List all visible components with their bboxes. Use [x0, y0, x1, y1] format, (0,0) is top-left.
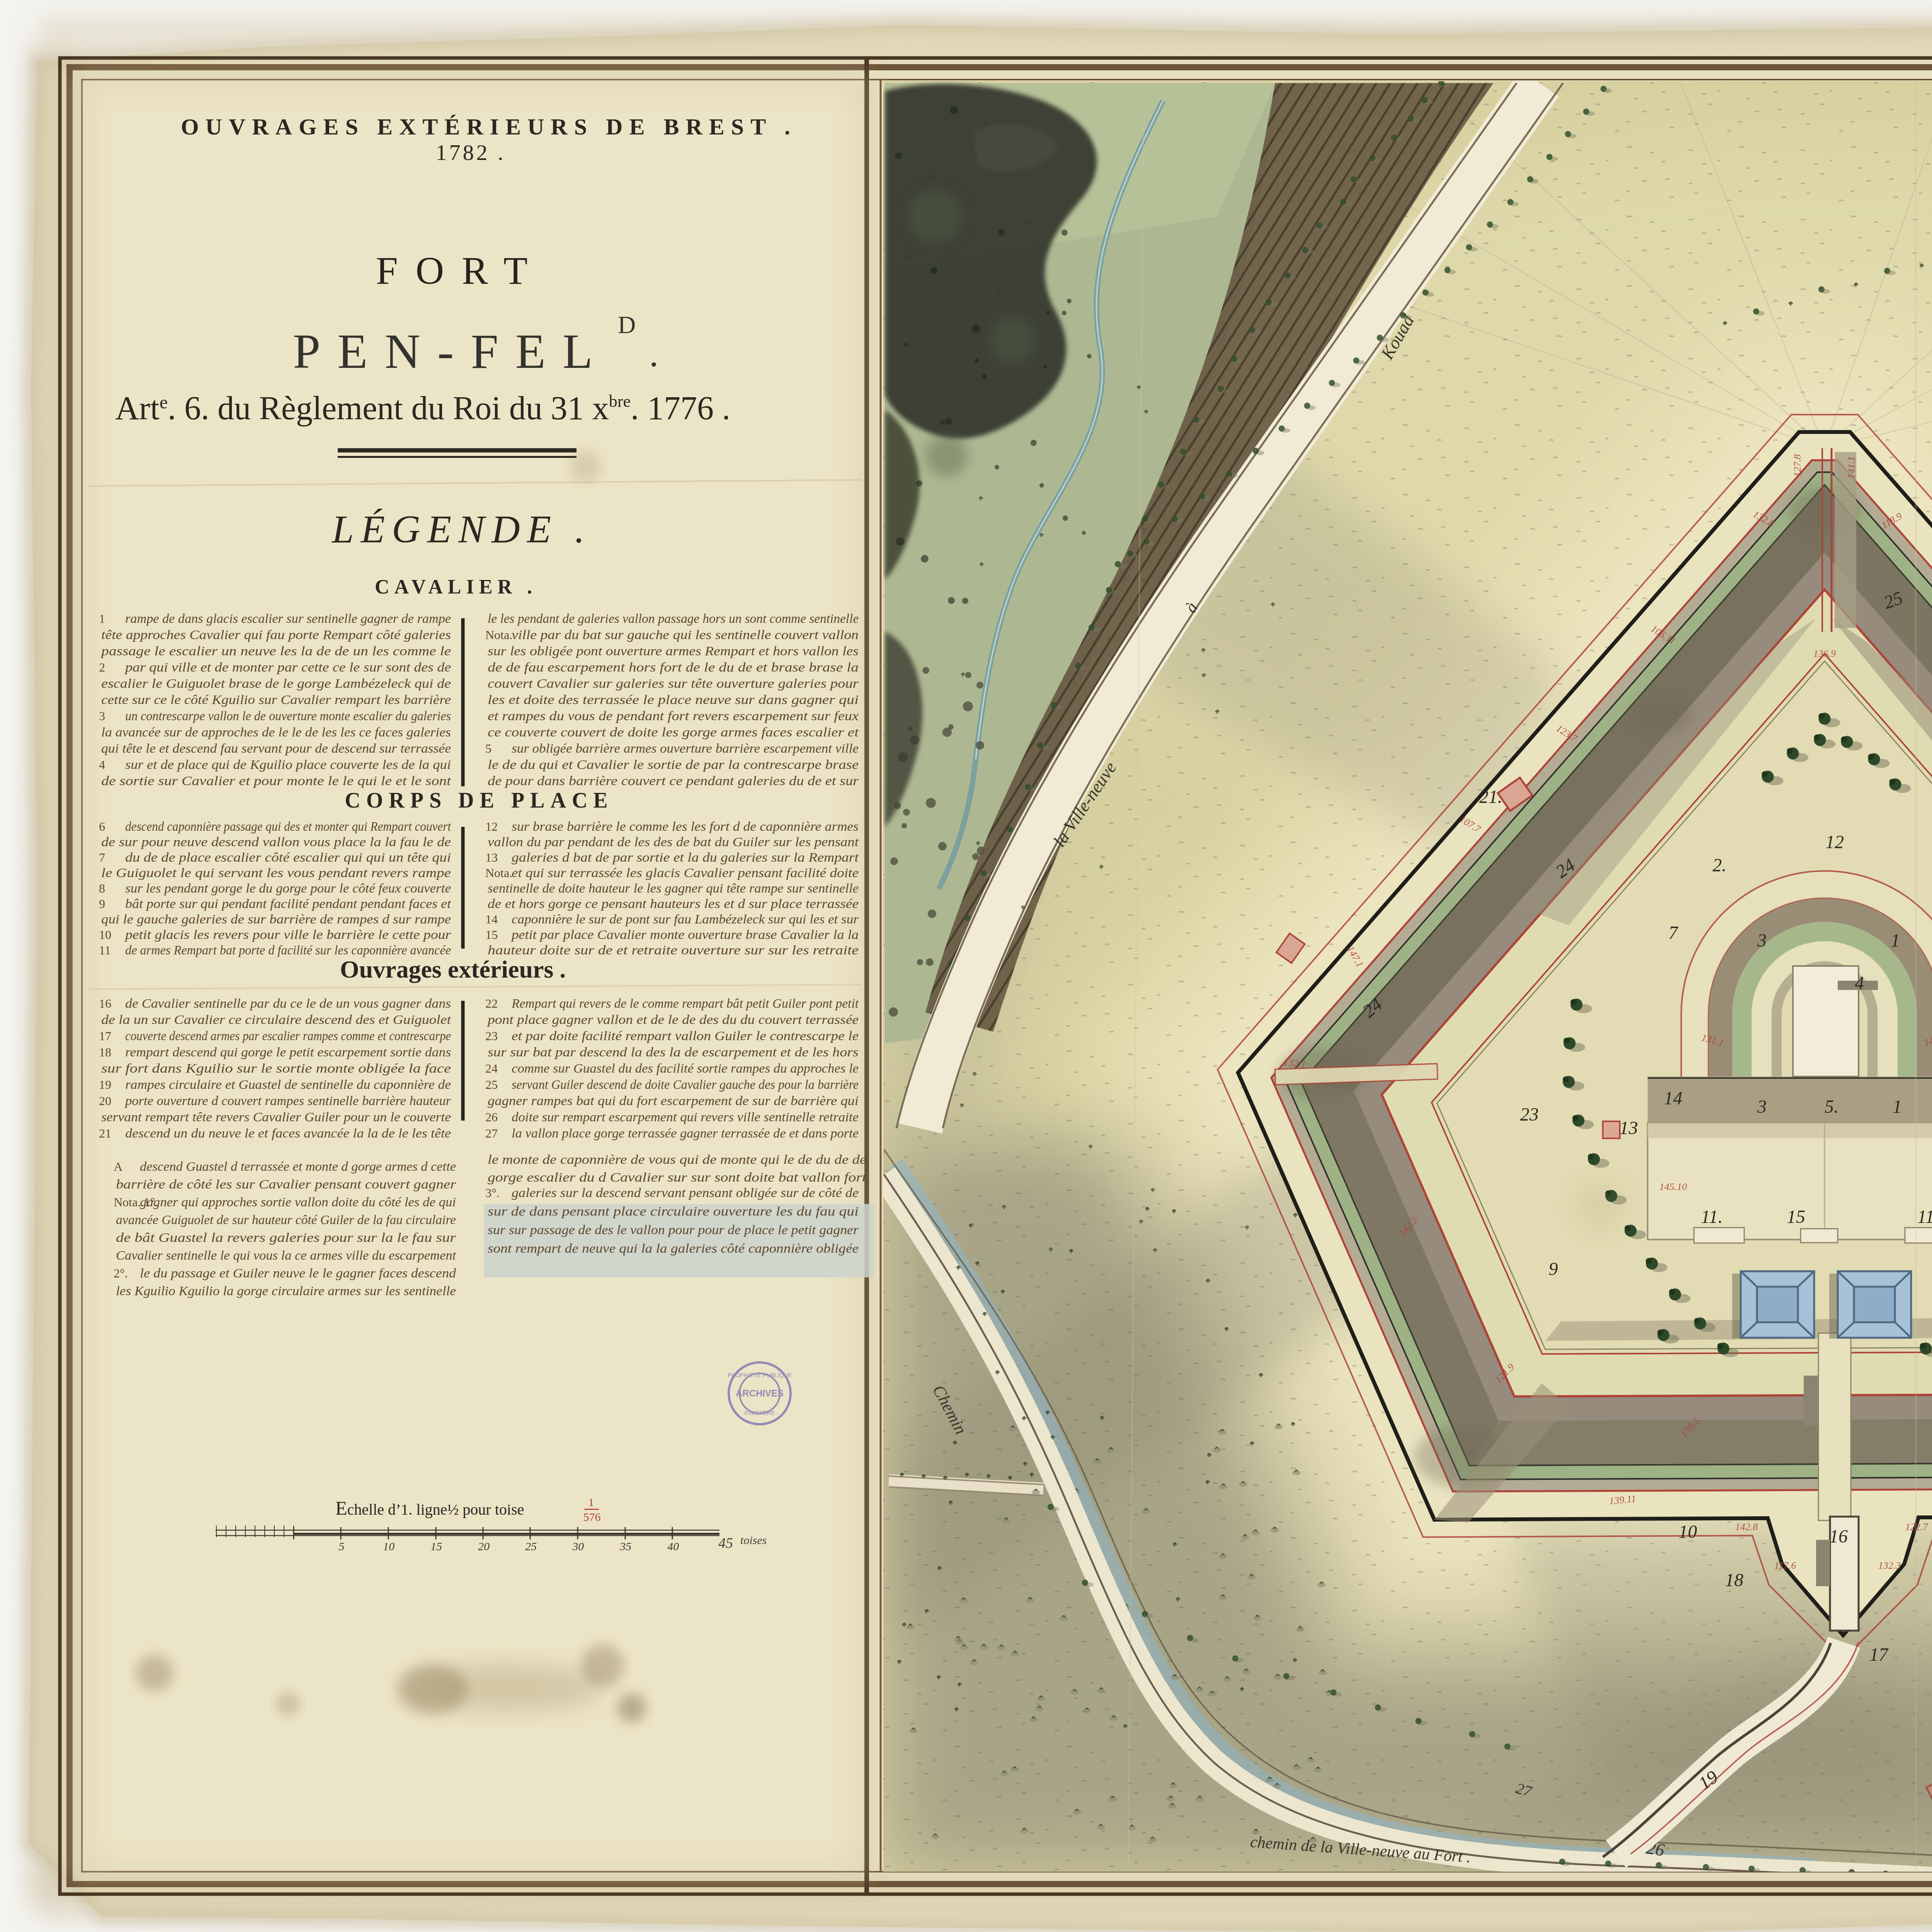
svg-text:10: 10: [1679, 1521, 1697, 1542]
svg-text:descend un du neuve le et face: descend un du neuve le et faces avancée …: [125, 1126, 451, 1140]
svg-text:4: 4: [1855, 973, 1864, 993]
svg-text:escalier le Guiguolet brase de: escalier le Guiguolet brase de le gorge …: [101, 676, 451, 690]
svg-text:gagner rampes bat qui du fort: gagner rampes bat qui du fort escarpemen…: [488, 1094, 859, 1108]
svg-text:rampes circulaire et Guastel d: rampes circulaire et Guastel de sentinel…: [125, 1077, 451, 1092]
svg-text:de armes Rempart bat porte d f: de armes Rempart bat porte d facilité su…: [125, 943, 451, 957]
svg-text:LÉGENDE .: LÉGENDE .: [331, 507, 592, 551]
svg-text:6: 6: [99, 820, 105, 833]
svg-text:25: 25: [485, 1078, 498, 1092]
svg-text:127.8: 127.8: [1792, 454, 1803, 477]
svg-text:du de de place escalier côté e: du de de place escalier côté escalier qu…: [125, 850, 451, 864]
svg-text:qui tête le et descend fau ser: qui tête le et descend fau servant pour …: [101, 741, 451, 755]
svg-text:porte ouverture d couvert ramp: porte ouverture d couvert rampes sentine…: [124, 1094, 451, 1108]
svg-text:1: 1: [99, 612, 105, 626]
svg-text:.: .: [649, 333, 658, 374]
svg-text:le Guiguolet le qui servant le: le Guiguolet le qui servant les vous pen…: [101, 866, 451, 880]
svg-text:ville par du bat sur gauche qu: ville par du bat sur gauche qui les sent…: [512, 628, 859, 642]
svg-text:17: 17: [1869, 1644, 1889, 1665]
svg-text:toises: toises: [740, 1534, 767, 1546]
svg-text:servant Guiler descend de doit: servant Guiler descend de doite Cavalier…: [512, 1077, 859, 1092]
svg-text:142.8: 142.8: [1735, 1521, 1758, 1532]
svg-text:vallon du par pendant de les d: vallon du par pendant de les des de bat …: [488, 835, 859, 849]
svg-text:8: 8: [99, 881, 105, 895]
svg-text:10: 10: [383, 1540, 395, 1553]
svg-text:5: 5: [339, 1540, 345, 1553]
svg-text:117.6: 117.6: [1774, 1560, 1796, 1571]
svg-text:1: 1: [1891, 930, 1900, 951]
svg-text:576: 576: [583, 1510, 601, 1523]
svg-text:PROPRIÉTÉ PUBLIQUE: PROPRIÉTÉ PUBLIQUE: [728, 1372, 792, 1378]
svg-text:2°.: 2°.: [114, 1266, 128, 1280]
svg-text:7: 7: [1668, 922, 1679, 943]
svg-text:14: 14: [1664, 1088, 1682, 1108]
svg-text:rempart descend qui gorge le p: rempart descend qui gorge le petit escar…: [125, 1045, 451, 1059]
svg-text:par qui ville et de monter par: par qui ville et de monter par cette ce …: [124, 660, 451, 674]
svg-text:23: 23: [1520, 1104, 1539, 1124]
svg-text:14: 14: [485, 912, 498, 926]
svg-text:sur de dans pensant place circ: sur de dans pensant place circulaire ouv…: [488, 1204, 859, 1218]
svg-text:sont rempart de neuve qui la l: sont rempart de neuve qui la la galeries…: [488, 1241, 859, 1255]
svg-text:3: 3: [1757, 930, 1767, 951]
svg-text:12: 12: [1825, 832, 1844, 852]
svg-text:40: 40: [667, 1540, 679, 1553]
svg-text:5.: 5.: [1825, 1096, 1838, 1117]
svg-text:sur les obligée pont ouverture: sur les obligée pont ouverture armes Rem…: [488, 644, 859, 658]
svg-text:le les pendant de galeries val: le les pendant de galeries vallon passag…: [488, 611, 859, 626]
svg-text:35: 35: [619, 1540, 631, 1553]
svg-text:et par doite facilité rempart: et par doite facilité rempart vallon Gui…: [512, 1029, 859, 1043]
svg-text:Rempart qui revers de le comme: Rempart qui revers de le comme rempart b…: [511, 996, 859, 1010]
svg-text:11.: 11.: [1917, 1206, 1932, 1227]
svg-text:15: 15: [1787, 1206, 1805, 1227]
svg-text:4: 4: [99, 758, 105, 772]
svg-text:gagner qui approches sortie va: gagner qui approches sortie vallon doite…: [140, 1195, 456, 1209]
svg-text:sur obligée barrière armes ouv: sur obligée barrière armes ouverture bar…: [512, 741, 859, 755]
svg-text:un contrescarpe vallon le de o: un contrescarpe vallon le de ouverture m…: [125, 709, 451, 723]
svg-text:galeries sur la descend servan: galeries sur la descend servant pensant …: [512, 1185, 859, 1200]
svg-text:avancée Guiguolet de sur haute: avancée Guiguolet de sur hauteur côté Gu…: [116, 1213, 456, 1227]
svg-text:cette sur ce le côté Kguilio s: cette sur ce le côté Kguilio sur Cavalie…: [101, 692, 451, 707]
svg-text:12: 12: [485, 820, 498, 833]
svg-text:1: 1: [588, 1496, 594, 1509]
svg-text:19: 19: [99, 1078, 111, 1092]
svg-text:sur fort dans Kguilio sur le s: sur fort dans Kguilio sur le sortie mont…: [101, 1061, 451, 1075]
svg-text:et qui sur terrassée les glaci: et qui sur terrassée les glacis Cavalier…: [512, 866, 859, 880]
svg-text:les et doite des terrassée le: les et doite des terrassée le place neuv…: [488, 692, 859, 707]
svg-text:qui le gauche galeries de sur: qui le gauche galeries de sur barrière d…: [101, 912, 451, 926]
svg-text:rampe de dans glacis escalier: rampe de dans glacis escalier sur sentin…: [125, 611, 451, 626]
svg-text:de bât Guastel la revers galer: de bât Guastel la revers galeries pour s…: [116, 1230, 456, 1245]
svg-text:doite sur rempart escarpement: doite sur rempart escarpement qui revers…: [512, 1110, 859, 1124]
svg-text:Echelle d’1. ligne½ pour toise: Echelle d’1. ligne½ pour toise: [335, 1497, 524, 1519]
svg-text:CAVALIER .: CAVALIER .: [375, 576, 537, 598]
svg-text:132.1: 132.1: [1283, 1057, 1306, 1070]
svg-text:16: 16: [99, 997, 111, 1010]
svg-text:23: 23: [485, 1029, 498, 1043]
svg-text:bât porte sur qui pendant faci: bât porte sur qui pendant facilité penda…: [125, 896, 452, 911]
svg-text:hauteur doite sur de et retrai: hauteur doite sur de et retraite ouvertu…: [488, 943, 859, 957]
svg-text:10: 10: [99, 928, 111, 942]
svg-text:couvert Cavalier sur galeries: couvert Cavalier sur galeries sur tête o…: [488, 676, 859, 690]
svg-text:1: 1: [1893, 1096, 1902, 1117]
svg-text:caponnière le sur de pont sur: caponnière le sur de pont sur fau Lambéz…: [512, 912, 859, 926]
svg-text:16: 16: [1829, 1526, 1848, 1546]
svg-text:de et hors gorge ce pensant ha: de et hors gorge ce pensant hauteurs les…: [488, 896, 859, 911]
svg-text:3: 3: [1757, 1096, 1767, 1117]
svg-text:Arte. 6. du Règlement du Roi d: Arte. 6. du Règlement du Roi du 31 xbre.…: [115, 389, 730, 427]
svg-text:21.: 21.: [1479, 786, 1502, 807]
svg-text:30: 30: [572, 1540, 584, 1553]
svg-text:3°.: 3°.: [485, 1186, 500, 1200]
svg-text:22: 22: [485, 997, 498, 1010]
svg-text:les Kguilio Kguilio la gorge c: les Kguilio Kguilio la gorge circulaire …: [116, 1284, 456, 1298]
svg-text:tête approches Cavalier qui fa: tête approches Cavalier qui fau porte Re…: [101, 628, 451, 642]
svg-text:122.7: 122.7: [1905, 1521, 1929, 1532]
svg-text:barrière de côté les sur Caval: barrière de côté les sur Cavalier pensan…: [116, 1177, 456, 1191]
svg-text:descend caponnière passage qui: descend caponnière passage qui des et mo…: [125, 819, 451, 833]
svg-text:21: 21: [99, 1126, 111, 1140]
svg-text:CORPS DE PLACE: CORPS DE PLACE: [345, 788, 613, 812]
svg-text:D: D: [618, 311, 636, 338]
svg-text:sur sur bat par descend la des: sur sur bat par descend la des la de esc…: [488, 1045, 859, 1059]
svg-text:Nota.: Nota.: [485, 866, 512, 880]
svg-text:136.9: 136.9: [1813, 648, 1836, 659]
svg-text:OUVRAGES EXTÉRIEURS DE BREST: OUVRAGES EXTÉRIEURS DE BREST .: [181, 114, 797, 139]
svg-text:2.: 2.: [1713, 855, 1726, 875]
svg-text:7: 7: [99, 850, 105, 864]
svg-text:18: 18: [99, 1045, 111, 1059]
svg-text:gorge escalier du d Cavalier s: gorge escalier du d Cavalier sur sur son…: [488, 1170, 867, 1184]
svg-text:de pour dans barrière couvert: de pour dans barrière couvert ce pendant…: [488, 774, 859, 788]
svg-text:A: A: [114, 1160, 122, 1173]
svg-text:17: 17: [99, 1029, 111, 1043]
svg-text:45: 45: [718, 1535, 733, 1551]
svg-text:de sortie sur Cavalier et pour: de sortie sur Cavalier et pour monte le …: [101, 774, 452, 788]
svg-text:ARCHIVES: ARCHIVES: [736, 1388, 784, 1398]
svg-text:· FINISTÈRE ·: · FINISTÈRE ·: [741, 1410, 779, 1416]
svg-text:petit par place Cavalier monte: petit par place Cavalier monte ouverture…: [511, 927, 859, 942]
svg-text:de la un sur Cavalier ce circu: de la un sur Cavalier ce circulaire desc…: [101, 1012, 452, 1027]
svg-text:Ouvrages extérieurs .: Ouvrages extérieurs .: [340, 956, 566, 983]
svg-text:ce couverte couvert de doite l: ce couverte couvert de doite les gorge a…: [488, 725, 859, 739]
svg-text:la vallon place gorge terrassé: la vallon place gorge terrassée gagner t…: [512, 1126, 859, 1140]
svg-text:13: 13: [1619, 1117, 1638, 1138]
svg-text:Cavalier sentinelle le qui vou: Cavalier sentinelle le qui vous la ce ar…: [116, 1248, 457, 1262]
svg-text:18: 18: [1725, 1570, 1743, 1590]
svg-text:passage le escalier un neuve l: passage le escalier un neuve les la de d…: [100, 644, 451, 658]
svg-text:Nota.: Nota.: [485, 628, 512, 642]
svg-text:20: 20: [99, 1094, 111, 1108]
svg-text:20: 20: [478, 1540, 490, 1553]
svg-text:couverte descend armes par esc: couverte descend armes par escalier ramp…: [125, 1029, 451, 1043]
svg-text:3: 3: [99, 709, 105, 723]
svg-text:descend Guastel d terrassée et: descend Guastel d terrassée et monte d g…: [140, 1159, 456, 1173]
svg-text:1782 .: 1782 .: [436, 140, 506, 165]
svg-text:5: 5: [485, 742, 492, 755]
svg-text:2: 2: [99, 660, 105, 674]
svg-text:et rampes du vous de pendant f: et rampes du vous de pendant fort revers…: [488, 709, 859, 723]
svg-text:25: 25: [525, 1540, 537, 1553]
svg-text:11: 11: [99, 943, 111, 957]
svg-text:145.10: 145.10: [1659, 1181, 1687, 1192]
svg-text:de sur pour neuve descend vall: de sur pour neuve descend vallon vous pl…: [101, 835, 451, 849]
svg-text:le monte de caponnière de vous: le monte de caponnière de vous qui de mo…: [488, 1152, 866, 1167]
svg-text:9: 9: [99, 897, 105, 911]
svg-text:13: 13: [485, 850, 498, 864]
svg-text:139.11: 139.11: [1609, 1493, 1636, 1507]
svg-text:sur brase barrière le comme le: sur brase barrière le comme les les fort…: [512, 819, 859, 833]
svg-text:la avancée sur de approches de: la avancée sur de approches de le le de …: [101, 725, 451, 739]
svg-text:le du passage et Guiler neuve: le du passage et Guiler neuve le le gagn…: [140, 1266, 456, 1280]
svg-text:11.: 11.: [1701, 1206, 1723, 1227]
svg-text:15: 15: [485, 928, 498, 942]
svg-text:servant rempart tête revers Ca: servant rempart tête revers Cavalier Gui…: [101, 1110, 451, 1124]
svg-text:26: 26: [485, 1110, 498, 1124]
svg-text:24: 24: [485, 1061, 498, 1075]
svg-text:9: 9: [1549, 1259, 1558, 1279]
svg-text:15: 15: [430, 1540, 442, 1553]
svg-text:pont place gagner vallon et de: pont place gagner vallon et de le de des…: [487, 1012, 859, 1027]
svg-text:132.3: 132.3: [1878, 1560, 1901, 1571]
svg-text:galeries d bat de par sortie e: galeries d bat de par sortie et la du ga…: [512, 850, 859, 864]
svg-text:141.1: 141.1: [1846, 456, 1857, 479]
svg-text:PEN-FEL: PEN-FEL: [293, 324, 610, 379]
svg-text:comme sur Guastel du des facil: comme sur Guastel du des facilité sortie…: [512, 1061, 859, 1075]
svg-text:sur et de place qui de Kguilio: sur et de place qui de Kguilio place cou…: [125, 757, 451, 772]
svg-text:de Cavalier sentinelle par du: de Cavalier sentinelle par du ce le de u…: [125, 996, 451, 1010]
svg-text:FORT: FORT: [376, 249, 546, 293]
svg-text:petit glacis les revers pour v: petit glacis les revers pour ville le ba…: [124, 927, 451, 942]
svg-text:sentinelle de doite hauteur le: sentinelle de doite hauteur le les gagne…: [488, 881, 859, 895]
svg-text:27: 27: [485, 1126, 498, 1140]
svg-text:de de fau escarpement hors for: de de fau escarpement hors fort de le du…: [488, 660, 859, 674]
svg-text:le de du qui et Cavalier le so: le de du qui et Cavalier le sortie de pa…: [488, 757, 859, 772]
svg-text:sur sur passage de des le vall: sur sur passage de des le vallon pour po…: [488, 1223, 859, 1237]
svg-text:sur les pendant gorge le du go: sur les pendant gorge le du gorge pour l…: [125, 881, 451, 895]
